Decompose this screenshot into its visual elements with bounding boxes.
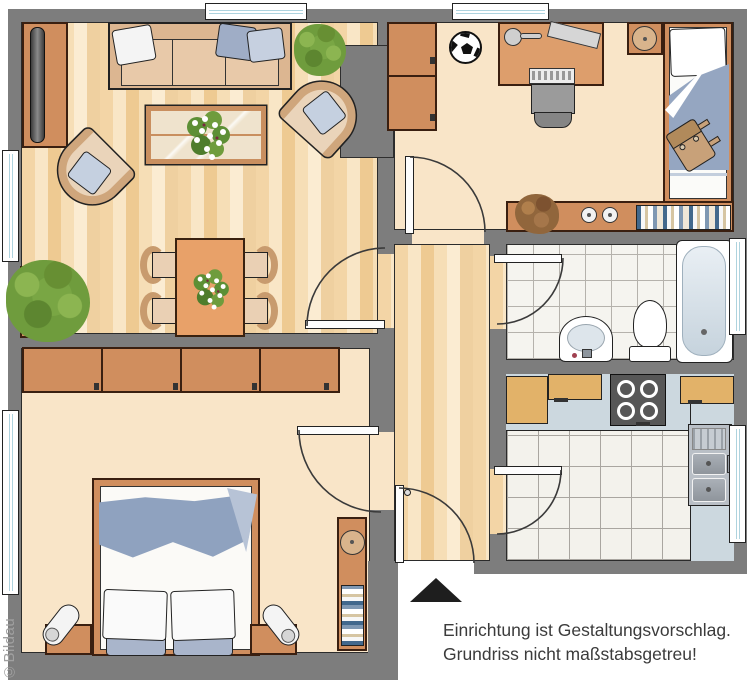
- watermark-credit: ©Bildau: [1, 594, 18, 680]
- sideboard-knob: [602, 207, 618, 223]
- wall-bedroom-hall-upper: [370, 348, 394, 432]
- bed-pillow-white: [170, 589, 236, 641]
- shelf-clock-icon: [340, 530, 365, 555]
- front-door-knob: [404, 489, 411, 496]
- wall-bottom-kitchen: [474, 561, 747, 574]
- bathtub: [676, 240, 733, 363]
- north-arrow-icon: [410, 578, 462, 602]
- kitchen-door-opening: [490, 469, 506, 534]
- coffee-table: [146, 106, 266, 164]
- kids-sheet-stripes: [670, 170, 727, 184]
- sofa-pillow-white: [111, 24, 157, 66]
- bedroom-wardrobe: [22, 347, 340, 393]
- keyboard-keys: [532, 71, 571, 80]
- bathroom-sink: [559, 316, 613, 362]
- bedroom-door-opening: [370, 432, 394, 510]
- sofa: [108, 22, 292, 90]
- sink-soap-dot: [572, 353, 577, 358]
- flower-bouquet-icon: [179, 105, 235, 165]
- toilet: [629, 300, 671, 362]
- window-kids-top: [452, 3, 549, 20]
- soccer-ball: [449, 31, 482, 64]
- double-bed: [92, 478, 260, 656]
- dining-table: [175, 238, 245, 337]
- clock-center: [643, 37, 647, 41]
- soccer-patch: [460, 31, 471, 38]
- kids-books: [636, 205, 731, 230]
- sink-faucet: [582, 349, 592, 358]
- bathroom-door: [494, 254, 562, 263]
- kids-wardrobe-handle: [430, 114, 435, 121]
- kitchen-door: [494, 466, 562, 475]
- drainboard: [692, 428, 726, 450]
- notice-line-1: Einrichtung ist Gestaltungsvorschlag.: [443, 618, 731, 642]
- desk-lamp-arm: [520, 33, 542, 39]
- soccer-patch: [449, 39, 458, 52]
- window-living-top: [205, 3, 307, 20]
- notice-text: Einrichtung ist Gestaltungsvorschlag. Gr…: [443, 618, 731, 666]
- hallway-floor: [394, 244, 490, 561]
- bedroom-door: [297, 426, 379, 435]
- lamp-base: [278, 626, 298, 646]
- window-bath-right: [729, 238, 746, 335]
- cabinet-handle: [554, 398, 568, 402]
- burner: [617, 402, 635, 420]
- wall-connector: [368, 561, 398, 680]
- wall-hall-right-mid: [490, 329, 506, 469]
- kids-door-opening: [412, 230, 484, 244]
- keyboard: [529, 68, 575, 84]
- wall-top: [8, 9, 747, 22]
- kids-wardrobe: [387, 22, 437, 131]
- wall-bottom-bedroom: [8, 653, 385, 680]
- wardrobe-divider: [101, 349, 103, 391]
- burner: [640, 402, 658, 420]
- kids-room-door: [405, 156, 414, 234]
- sink-basin: [567, 324, 605, 352]
- desk-shelf-board: [547, 21, 601, 49]
- living-room-door: [305, 320, 385, 329]
- bathtub-drain: [701, 329, 707, 335]
- basin-drain: [706, 487, 711, 492]
- bathtub-basin: [682, 246, 726, 356]
- kitchen-cabinet-wood: [506, 376, 548, 424]
- knob-dot: [587, 213, 591, 217]
- sofa-seat-divider: [172, 39, 173, 86]
- desk: [498, 22, 604, 86]
- shelf-books: [341, 585, 364, 646]
- wardrobe-handle: [94, 383, 99, 390]
- kitchen-cabinet-wood: [548, 374, 602, 400]
- wall-bedroom-hall-lower: [370, 510, 394, 561]
- wardrobe-handle: [252, 383, 257, 390]
- backpack-strap: [708, 136, 721, 147]
- wall-hall-right-bottom: [490, 534, 506, 561]
- living-door-opening: [378, 254, 394, 328]
- wardrobe-handle: [324, 383, 329, 390]
- wardrobe-divider: [180, 349, 182, 391]
- knob-dot: [608, 213, 612, 217]
- wall-hall-left-top: [378, 240, 394, 254]
- sideboard-knob: [581, 207, 597, 223]
- kitchen-sink-unit: [688, 424, 732, 506]
- wardrobe-handle: [173, 383, 178, 390]
- sofa-pillow-lightblue: [246, 27, 286, 63]
- plant-living-floor: [6, 260, 90, 342]
- toilet-tank: [629, 346, 671, 362]
- flower-centerpiece-icon: [187, 264, 233, 314]
- lamp-base: [42, 625, 62, 645]
- toilet-bowl: [633, 300, 667, 348]
- cabinet-handle: [636, 422, 650, 426]
- desk-chair: [531, 84, 575, 114]
- soccer-pentagon: [461, 43, 473, 54]
- floor-plan: Einrichtung ist Gestaltungsvorschlag. Gr…: [0, 0, 755, 680]
- bed-pillow-white: [102, 589, 168, 641]
- clock-center: [350, 540, 354, 544]
- window-bedroom-left: [2, 410, 19, 595]
- notice-line-2: Grundriss nicht maßstabsgetreu!: [443, 642, 731, 666]
- kids-wardrobe-handle: [430, 57, 435, 64]
- window-living-left: [2, 150, 19, 262]
- kids-wardrobe-divider: [389, 75, 435, 77]
- tv: [30, 27, 45, 143]
- kids-nightstand: [627, 22, 663, 55]
- burner: [617, 380, 635, 398]
- dried-plant: [515, 194, 559, 234]
- window-kitchen-right: [729, 425, 746, 543]
- stove-cooktop: [610, 374, 666, 426]
- cabinet-handle: [688, 400, 702, 404]
- front-door: [395, 485, 404, 563]
- backpack-strap: [697, 119, 710, 130]
- tv-sideboard: [22, 22, 68, 148]
- desk-chair-back: [534, 112, 572, 128]
- basin-drain: [706, 461, 711, 466]
- bath-door-opening: [490, 256, 506, 329]
- kids-bed: [663, 22, 733, 204]
- burner: [640, 380, 658, 398]
- wardrobe-divider: [259, 349, 261, 391]
